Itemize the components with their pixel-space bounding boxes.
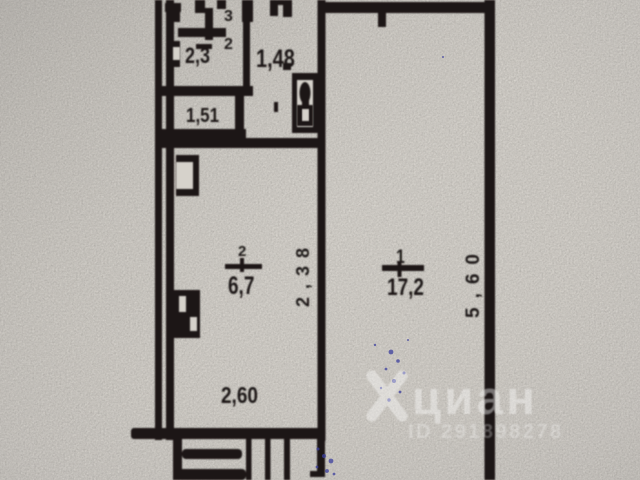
svg-text:3: 3 (224, 8, 233, 25)
svg-text:5,60: 5,60 (463, 245, 484, 318)
svg-text:17,2: 17,2 (387, 274, 424, 301)
svg-text:циан: циан (412, 371, 538, 424)
svg-text:1,48: 1,48 (256, 45, 295, 73)
svg-text:1,51: 1,51 (186, 105, 219, 128)
svg-text:6,7: 6,7 (228, 272, 254, 300)
svg-text:ID 291898278: ID 291898278 (408, 421, 564, 443)
svg-text:2: 2 (224, 36, 233, 53)
svg-text:2,60: 2,60 (221, 383, 258, 408)
svg-text:2,38: 2,38 (293, 240, 313, 307)
svg-text:2: 2 (238, 243, 246, 260)
